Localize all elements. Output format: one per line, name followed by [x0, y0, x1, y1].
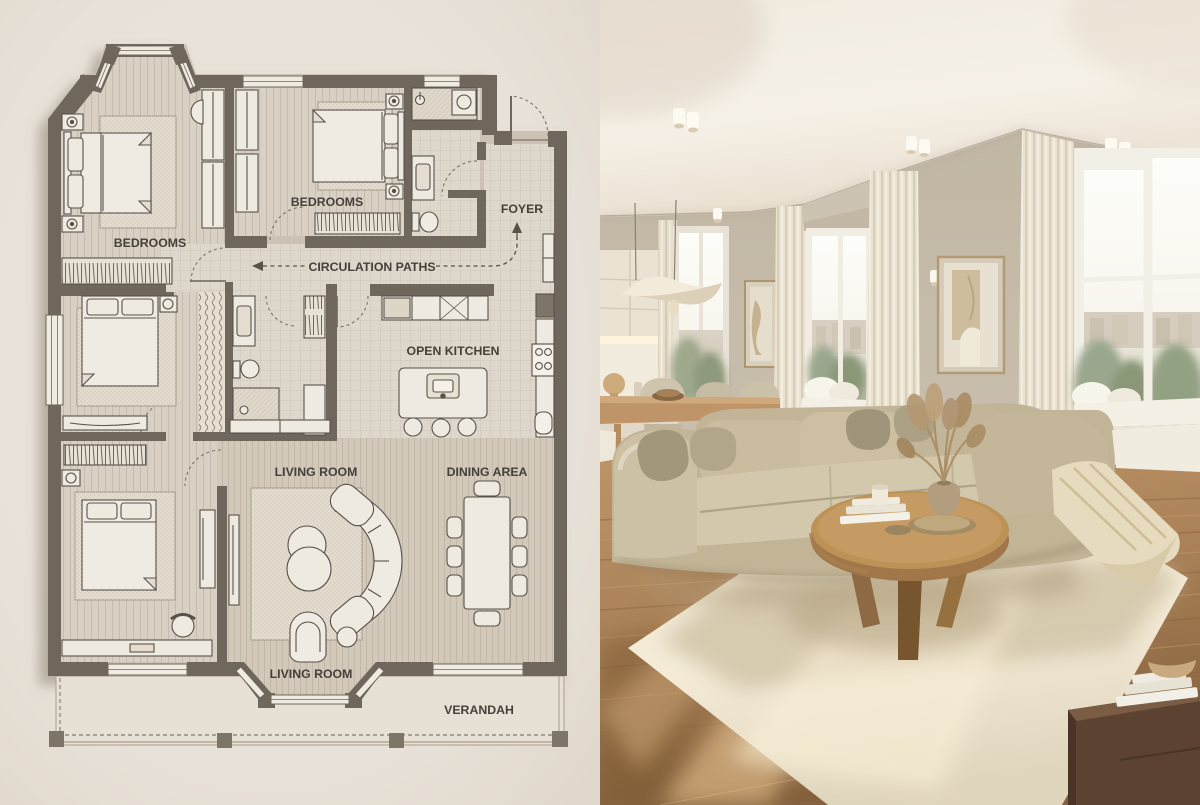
svg-text:BEDROOMS: BEDROOMS — [291, 195, 363, 209]
svg-text:LIVING ROOM: LIVING ROOM — [275, 465, 358, 479]
svg-text:VERANDAH: VERANDAH — [444, 703, 514, 717]
svg-text:OPEN KITCHEN: OPEN KITCHEN — [407, 344, 500, 358]
svg-text:DINING AREA: DINING AREA — [447, 465, 528, 479]
svg-text:FOYER: FOYER — [501, 202, 543, 216]
svg-text:LIVING ROOM: LIVING ROOM — [270, 667, 353, 681]
svg-text:BEDROOMS: BEDROOMS — [114, 236, 186, 250]
svg-text:CIRCULATION PATHS: CIRCULATION PATHS — [308, 260, 435, 274]
